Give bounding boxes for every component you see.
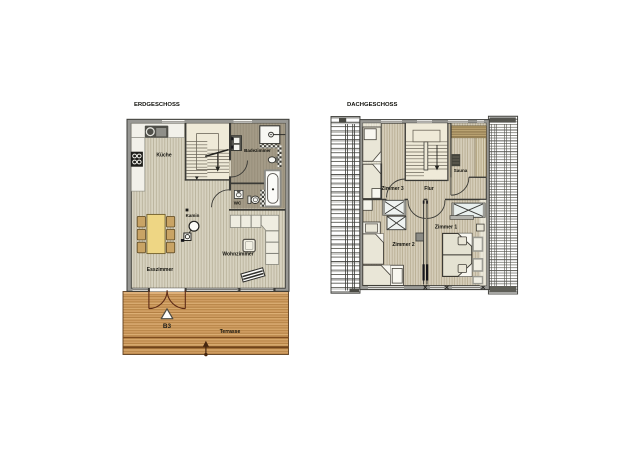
svg-text:Zimmer 2: Zimmer 2: [392, 242, 414, 248]
svg-text:DACHGESCHOSS: DACHGESCHOSS: [347, 102, 397, 108]
svg-text:Sauna: Sauna: [454, 168, 468, 173]
svg-text:ERDGESCHOSS: ERDGESCHOSS: [134, 102, 180, 108]
svg-text:Flur: Flur: [424, 186, 433, 192]
svg-text:Kamin: Kamin: [186, 213, 200, 218]
svg-text:Badezimmer: Badezimmer: [244, 148, 271, 153]
svg-text:WC: WC: [234, 201, 242, 206]
svg-text:B3: B3: [163, 323, 172, 330]
svg-text:Wohnzimmer: Wohnzimmer: [222, 252, 253, 258]
svg-text:Küche: Küche: [156, 153, 172, 159]
svg-text:Terrasse: Terrasse: [220, 329, 241, 335]
svg-text:Zimmer 3: Zimmer 3: [381, 186, 403, 192]
svg-text:Esszimmer: Esszimmer: [147, 267, 173, 273]
svg-text:Zimmer 1: Zimmer 1: [435, 225, 457, 231]
